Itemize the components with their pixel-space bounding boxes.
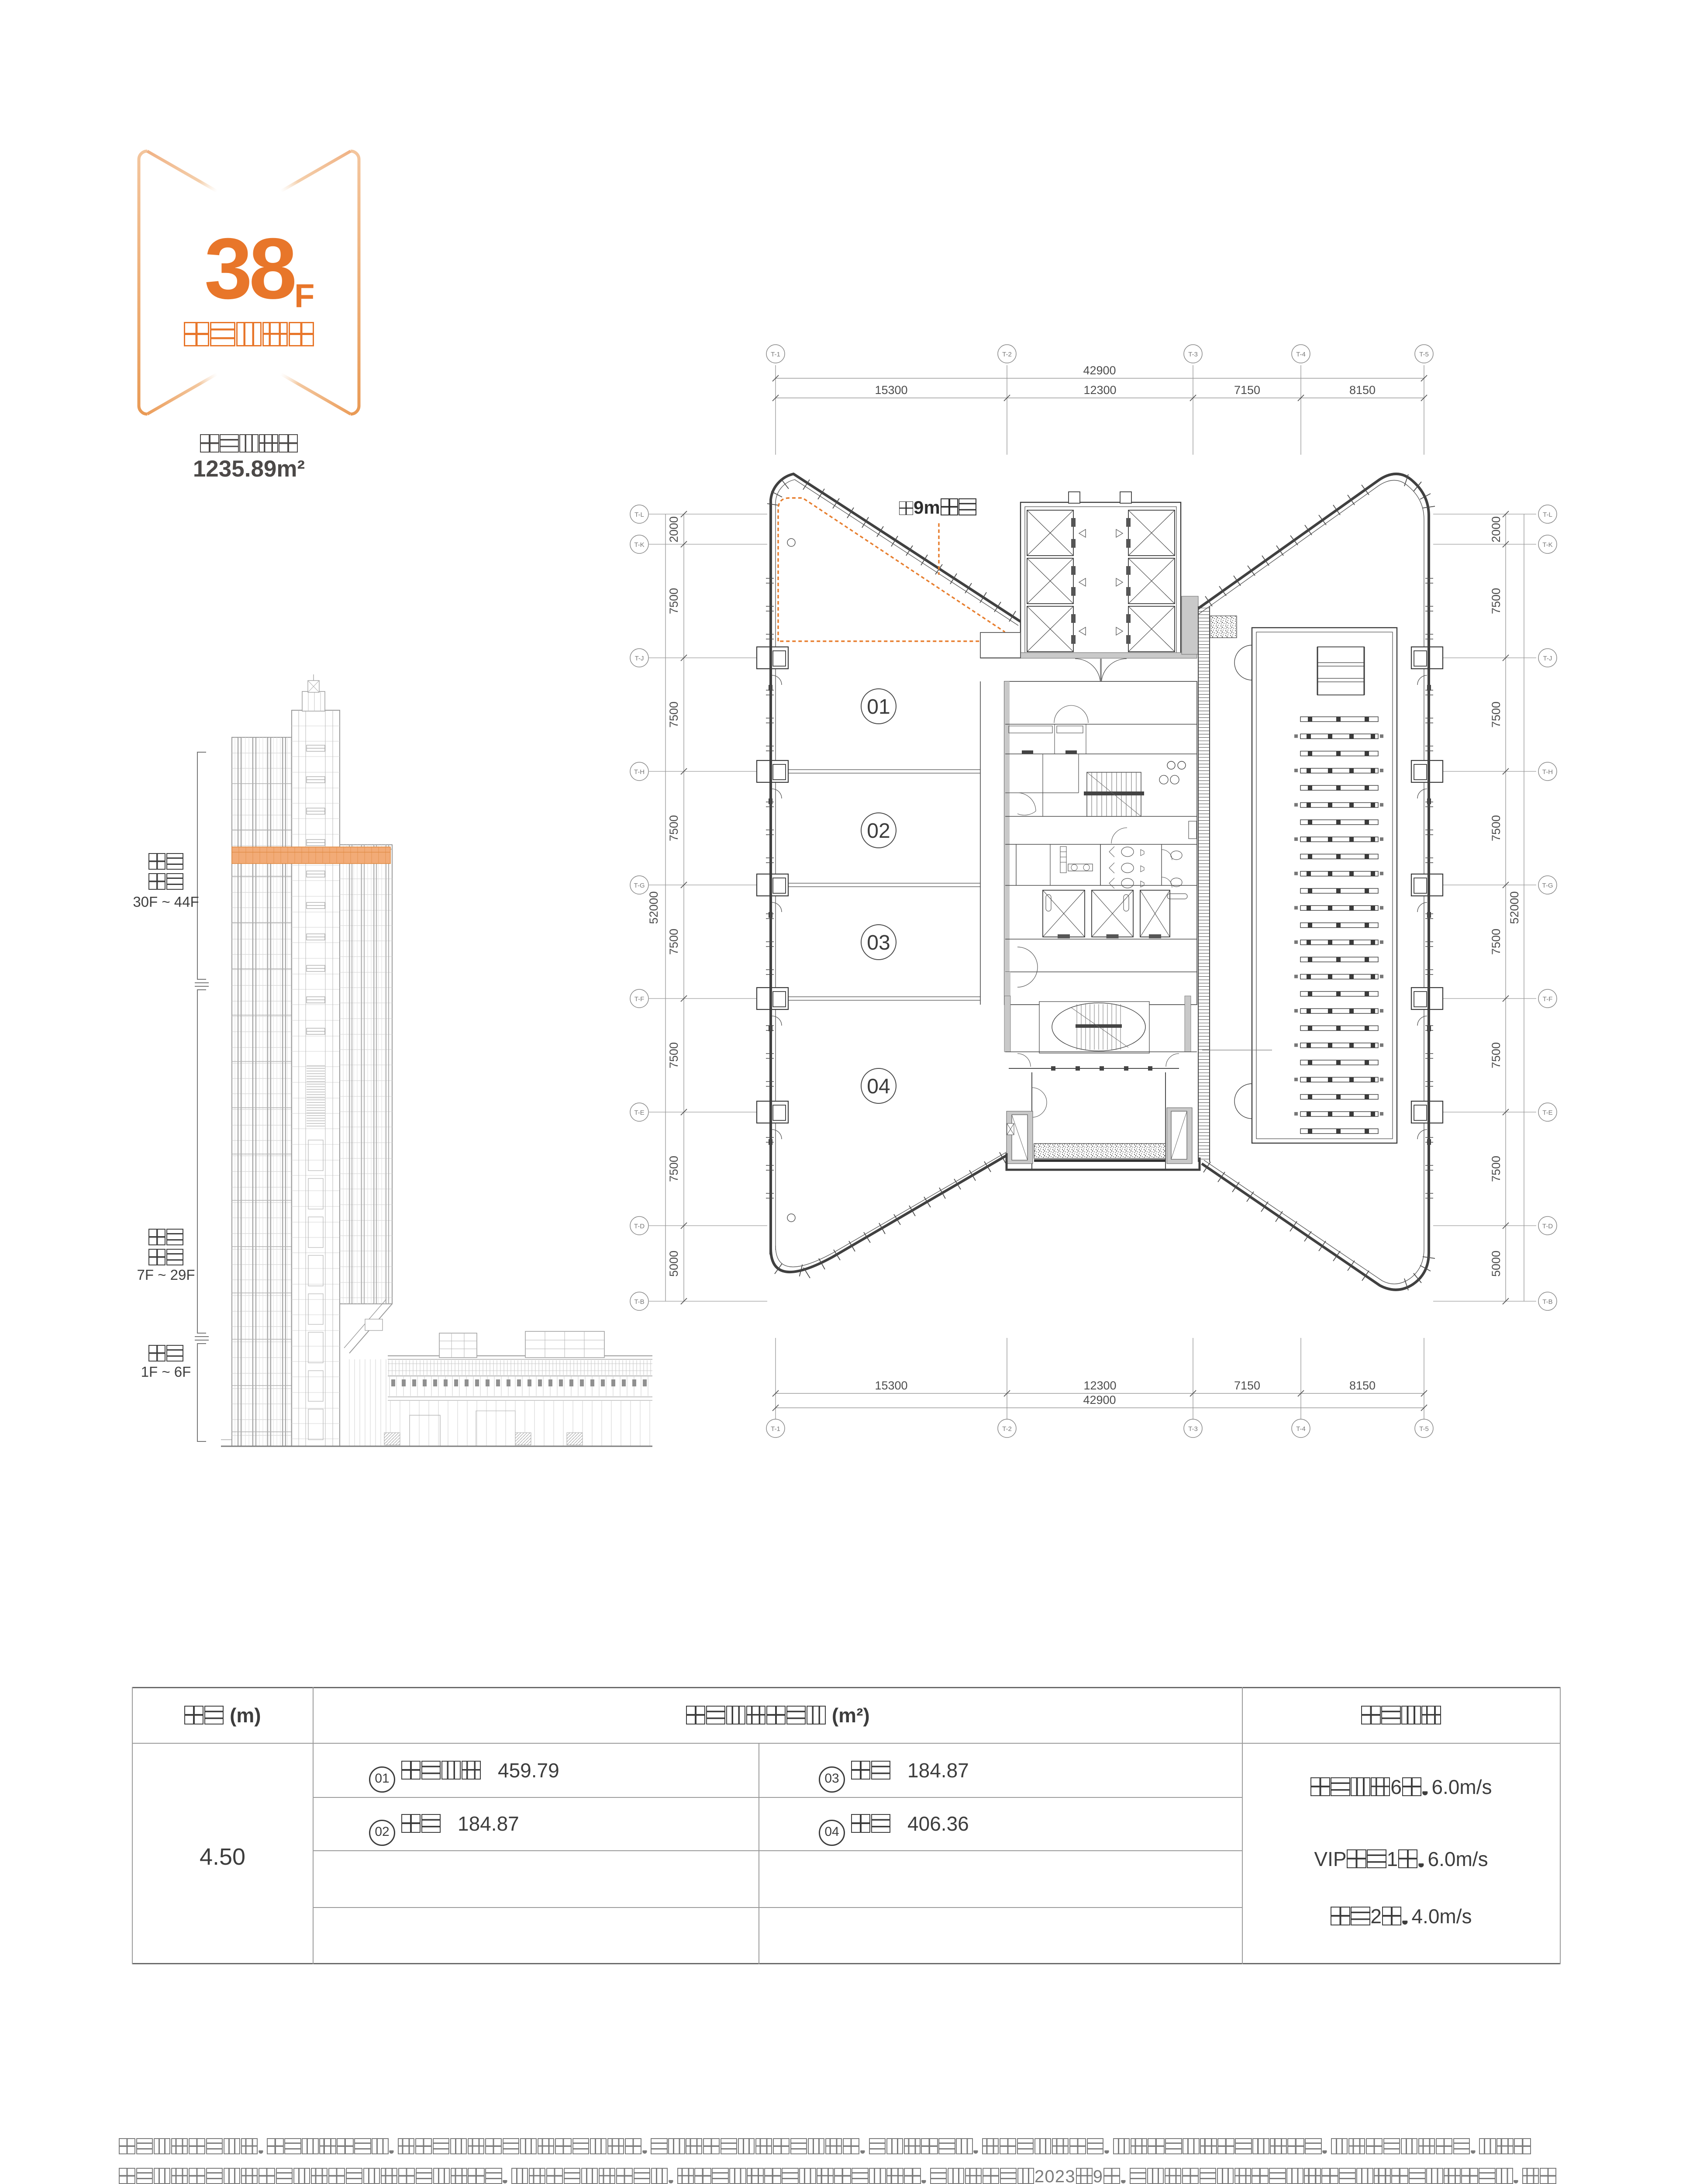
svg-text:T-F: T-F xyxy=(1543,995,1553,1003)
svg-text:7500: 7500 xyxy=(1490,1156,1503,1182)
svg-text:T-4: T-4 xyxy=(1296,1425,1306,1433)
svg-text:T-B: T-B xyxy=(1542,1298,1552,1306)
svg-text:T-1: T-1 xyxy=(771,351,780,358)
svg-text:T-J: T-J xyxy=(635,655,644,662)
svg-text:52000: 52000 xyxy=(1508,891,1521,924)
svg-text:12300: 12300 xyxy=(1083,384,1116,397)
svg-text:12300: 12300 xyxy=(1083,1379,1116,1392)
svg-text:T-3: T-3 xyxy=(1188,1425,1198,1433)
svg-text:T-H: T-H xyxy=(634,768,645,776)
svg-text:2000: 2000 xyxy=(667,516,680,543)
svg-text:T-L: T-L xyxy=(634,511,644,518)
svg-text:7500: 7500 xyxy=(667,588,680,614)
svg-text:8150: 8150 xyxy=(1349,384,1376,397)
svg-text:T-1: T-1 xyxy=(771,1425,780,1433)
svg-text:15300: 15300 xyxy=(875,384,907,397)
svg-text:7500: 7500 xyxy=(1490,929,1503,955)
svg-text:7500: 7500 xyxy=(667,815,680,841)
svg-text:7500: 7500 xyxy=(667,702,680,728)
svg-text:T-G: T-G xyxy=(634,882,645,889)
svg-text:T-B: T-B xyxy=(634,1298,644,1306)
svg-text:7500: 7500 xyxy=(667,929,680,955)
svg-text:T-E: T-E xyxy=(1542,1109,1552,1116)
svg-text:5000: 5000 xyxy=(667,1251,680,1277)
svg-text:T-2: T-2 xyxy=(1002,1425,1012,1433)
svg-text:7500: 7500 xyxy=(667,1042,680,1068)
svg-text:52000: 52000 xyxy=(647,891,660,924)
svg-text:7500: 7500 xyxy=(1490,702,1503,728)
svg-text:T-2: T-2 xyxy=(1002,351,1012,358)
svg-text:03: 03 xyxy=(867,931,890,954)
svg-text:04: 04 xyxy=(867,1075,890,1098)
svg-text:01: 01 xyxy=(867,695,890,719)
svg-text:42900: 42900 xyxy=(1083,1393,1116,1406)
svg-text:T-5: T-5 xyxy=(1419,1425,1429,1433)
svg-text:T-K: T-K xyxy=(634,541,644,549)
svg-text:2000: 2000 xyxy=(1490,516,1503,543)
svg-text:T-3: T-3 xyxy=(1188,351,1198,358)
svg-text:8150: 8150 xyxy=(1349,1379,1376,1392)
svg-text:7500: 7500 xyxy=(1490,588,1503,614)
svg-text:T-D: T-D xyxy=(634,1223,645,1230)
svg-text:T-E: T-E xyxy=(634,1109,644,1116)
svg-text:T-G: T-G xyxy=(1542,882,1553,889)
svg-text:T-5: T-5 xyxy=(1419,351,1429,358)
svg-text:7500: 7500 xyxy=(1490,815,1503,841)
svg-text:T-4: T-4 xyxy=(1296,351,1306,358)
svg-text:T-H: T-H xyxy=(1542,768,1553,776)
svg-text:T-K: T-K xyxy=(1542,541,1552,549)
svg-text:T-F: T-F xyxy=(634,995,645,1003)
svg-text:7500: 7500 xyxy=(1490,1042,1503,1068)
svg-text:42900: 42900 xyxy=(1083,364,1116,377)
svg-text:T-J: T-J xyxy=(1543,655,1552,662)
svg-text:02: 02 xyxy=(867,819,890,843)
svg-text:15300: 15300 xyxy=(875,1379,907,1392)
svg-text:7150: 7150 xyxy=(1234,384,1260,397)
svg-text:T-D: T-D xyxy=(1542,1223,1553,1230)
svg-text:7150: 7150 xyxy=(1234,1379,1260,1392)
svg-text:7500: 7500 xyxy=(667,1156,680,1182)
svg-text:T-L: T-L xyxy=(1543,511,1552,518)
svg-text:5000: 5000 xyxy=(1490,1251,1503,1277)
